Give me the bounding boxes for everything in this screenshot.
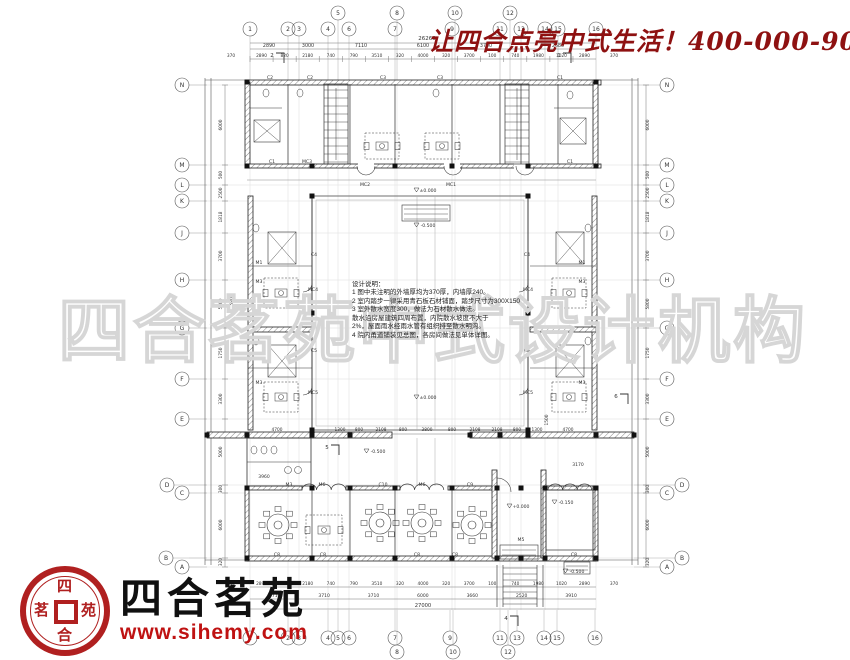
coffee-table [376, 142, 388, 150]
dim-text: 790 [350, 53, 358, 59]
column [468, 433, 473, 438]
tag-label: M5 [518, 537, 525, 543]
section-number: 6 [614, 394, 618, 400]
dim-text: 3700 [218, 250, 224, 261]
dim-text: 320 [442, 581, 450, 587]
axis-number-bottom: 10 [449, 649, 457, 656]
dim-text: 3000 [302, 43, 314, 49]
chair [458, 534, 464, 539]
dim-text: 740 [327, 53, 335, 59]
chair [377, 505, 383, 510]
wall [545, 486, 596, 490]
elevation-triangle [414, 395, 419, 399]
drawing-sheet: 1234567891011121314151612345678910111213… [0, 0, 850, 660]
tag-label: M3 [256, 380, 263, 386]
logo-text-block: 四合茗苑 www.sihemy.com [120, 577, 308, 645]
coffee-table [436, 142, 448, 150]
wall [245, 82, 250, 168]
column [245, 486, 250, 491]
dim-text: 27000 [415, 603, 432, 609]
wall [530, 327, 596, 332]
chair [408, 509, 414, 514]
notes-lines: 1 图中未注明的外墙厚均为370厚，内墙厚240。2 室内踏步一律采用青石板石材… [352, 289, 538, 340]
elevation-label: -0.500 [421, 223, 436, 229]
axis-letter-right: N [665, 82, 670, 89]
dim-text: 2890 [263, 43, 275, 49]
column [594, 486, 599, 491]
toilet-icon [251, 446, 257, 454]
column [245, 80, 250, 85]
chair [430, 509, 436, 514]
sofa-group [306, 515, 342, 545]
axis-number-bottom: 13 [513, 635, 521, 642]
column [495, 556, 500, 561]
axis-number-top: 4 [326, 26, 330, 33]
axis-letter-left: G [180, 325, 185, 332]
dining-table [468, 521, 476, 529]
wall [248, 196, 253, 430]
brand-logo: 四 合 茗 苑 四合茗苑 www.sihemy.com [20, 566, 308, 656]
wall [346, 486, 400, 490]
chair [286, 511, 292, 516]
axis-letter-right: C [665, 490, 669, 497]
section-flag [620, 394, 628, 404]
chair [291, 523, 297, 528]
dim-text: 3170 [572, 462, 584, 468]
tag-label: C4 [311, 252, 317, 258]
dim-text: 3510 [371, 581, 382, 587]
axis-number-top: 1 [248, 26, 252, 33]
column [594, 164, 599, 169]
chair [430, 532, 436, 537]
column [310, 433, 315, 438]
axis-letter-left: J [180, 230, 183, 237]
seal-char-bottom: 合 [57, 628, 72, 643]
tag-label: C2 [307, 75, 313, 81]
toilet-icon [263, 89, 269, 97]
axis-number-bottom: 12 [504, 649, 512, 656]
column [393, 556, 398, 561]
column [348, 433, 353, 438]
dim-text: 2180 [302, 53, 313, 59]
dim-text: 300 [218, 485, 224, 493]
table-decor [567, 291, 572, 296]
dim-text: 500 [218, 171, 224, 179]
toilet-icon [253, 337, 259, 345]
dining-table [461, 514, 483, 536]
column [450, 486, 455, 491]
axis-number-top: 7 [393, 26, 397, 33]
column [526, 164, 531, 169]
door-opening [358, 163, 374, 170]
dining-table [376, 519, 384, 527]
dim-text: 1818 [645, 211, 651, 222]
axis-letter-right: G [665, 325, 670, 332]
chair [435, 521, 441, 526]
dim-text: 3300 [218, 393, 224, 404]
note-line: 2%，屋面雨水经雨水管有组织排至散水明沟。 [352, 323, 538, 331]
tag-label: M6 [319, 482, 326, 488]
chair [366, 509, 372, 514]
chair [469, 539, 475, 544]
dining-table [369, 512, 391, 534]
column [245, 556, 250, 561]
tag-label: C3 [437, 75, 443, 81]
slogan-text: 让四合点亮中式生活！400-000-9075 [428, 27, 850, 56]
chair [388, 509, 394, 514]
dim-text: 320 [645, 558, 651, 566]
tag-label: C2 [267, 75, 273, 81]
chair [480, 534, 486, 539]
dim-text: 7110 [355, 43, 367, 49]
wall [207, 432, 392, 438]
tag-label: M1 [256, 260, 263, 266]
dim-text: 5800 [218, 298, 224, 309]
axis-number-top: 2 [286, 26, 290, 33]
seal-char-top: 四 [57, 579, 72, 594]
axis-letter-right: D [680, 482, 685, 489]
tag-label: C1 [557, 75, 563, 81]
gate-steps [402, 205, 450, 221]
dim-text: 820 [281, 53, 289, 59]
dim-text: 1750 [645, 347, 651, 358]
dim-text: 370 [610, 581, 618, 587]
tag-label: C1 [269, 159, 275, 165]
column [245, 164, 250, 169]
tag-label: M3 [579, 380, 586, 386]
column [450, 164, 455, 169]
column [594, 433, 599, 438]
column [526, 428, 531, 433]
wall [592, 196, 597, 430]
brand-website[interactable]: www.sihemy.com [120, 621, 308, 645]
dim-text: 1818 [218, 211, 224, 222]
dim-text: 5000 [645, 446, 651, 457]
dim-text: 100 [488, 581, 496, 587]
dim-text: 6000 [218, 519, 224, 530]
dim-text: 3700 [464, 581, 475, 587]
column [543, 556, 548, 561]
section-number: 4 [504, 616, 508, 622]
dim-text: 740 [327, 581, 335, 587]
dim-text: 6000 [218, 119, 224, 130]
tag-label: C5 [311, 348, 317, 354]
dim-text: 3960 [258, 474, 270, 480]
axis-letter-left: C [180, 490, 184, 497]
toilet-icon [585, 337, 591, 345]
axis-letter-left: K [180, 198, 185, 205]
dim-text: 6000 [645, 119, 651, 130]
toilet-icon [261, 446, 267, 454]
column [310, 556, 315, 561]
note-line: 4 院内甬道铺装见总图，各房间做法见单体详图。 [352, 332, 538, 340]
table-decor [279, 395, 284, 400]
table-decor [567, 395, 572, 400]
section-number: 2 [270, 53, 274, 59]
axis-letter-right: E [665, 416, 669, 423]
sofa-group [365, 133, 399, 159]
chair [366, 532, 372, 537]
sofa-group [425, 133, 459, 159]
toilet-icon [297, 89, 303, 97]
dim-text: 1020 [556, 581, 567, 587]
toilet-icon [271, 446, 277, 454]
dining-table [411, 512, 433, 534]
chair [485, 523, 491, 528]
column [310, 428, 315, 433]
tag-label: M1 [579, 260, 586, 266]
note-line: 散水沿房屋建筑四周布置，内院散水坡度不大于 [352, 315, 538, 323]
axis-letter-right: A [665, 564, 670, 571]
axis-number-bottom: 6 [347, 635, 351, 642]
axis-letter-right: L [665, 182, 669, 189]
brand-slogan: 让四合点亮中式生活！400-000-9075 [428, 22, 843, 58]
elevation-triangle [414, 223, 419, 227]
dim-text: 3710 [318, 593, 330, 599]
axis-letter-right: F [665, 376, 669, 383]
dim-text: 4000 [418, 581, 429, 587]
axis-letter-left: D [165, 482, 170, 489]
chair [393, 521, 399, 526]
dim-text: 6000 [645, 519, 651, 530]
table-decor [440, 144, 445, 149]
tag-label: M6 [419, 482, 426, 488]
column [245, 433, 250, 438]
chair [453, 523, 459, 528]
seal-char-left: 茗 [34, 603, 49, 618]
elevation-triangle [414, 188, 419, 192]
chair [458, 511, 464, 516]
note-line: 1 图中未注明的外墙厚均为370厚，内墙厚240。 [352, 289, 538, 297]
chair [388, 532, 394, 537]
tag-label: C8 [452, 552, 458, 558]
axis-number-bottom: 9 [448, 635, 452, 642]
elevation-triangle [364, 449, 369, 453]
seal-char-right: 苑 [81, 603, 96, 618]
brand-name: 四合茗苑 [120, 577, 308, 621]
toilet-icon [253, 224, 259, 232]
dim-text: 6000 [417, 593, 429, 599]
axis-number-bottom: 16 [591, 635, 599, 642]
column [594, 80, 599, 85]
tag-label: C9 [467, 482, 473, 488]
sofa-group [264, 382, 298, 412]
chair [377, 537, 383, 542]
dining-table [267, 514, 289, 536]
axis-number-top: 3 [297, 26, 301, 33]
chair [275, 507, 281, 512]
wall [247, 164, 601, 168]
chair [419, 505, 425, 510]
tag-label: M3 [579, 279, 586, 285]
axis-letter-right: J [665, 230, 668, 237]
elevation-label: -0.500 [570, 569, 585, 575]
elevation-label: -0.500 [371, 449, 386, 455]
column [310, 311, 315, 316]
elevation-triangle [507, 504, 512, 508]
tag-label: MC2 [360, 182, 370, 188]
chair [259, 523, 265, 528]
tag-label: C8 [320, 552, 326, 558]
chair [264, 511, 270, 516]
dim-text: 300 [645, 485, 651, 493]
dim-text: 5800 [645, 298, 651, 309]
axis-letter-left: H [180, 277, 185, 284]
elevation-triangle [552, 500, 557, 504]
dim-text: 3700 [645, 250, 651, 261]
dim-text: 320 [396, 581, 404, 587]
dim-text: 3660 [467, 593, 479, 599]
axis-letter-left: L [180, 182, 184, 189]
tag-label: MC1 [446, 182, 456, 188]
design-notes: 设计说明： 1 图中未注明的外墙厚均为370厚，内墙厚240。2 室内踏步一律采… [352, 281, 538, 340]
axis-number-top: 5 [336, 10, 340, 17]
tag-label: C8 [274, 552, 280, 558]
dim-text: 2890 [579, 581, 590, 587]
dim-text: 3300 [645, 393, 651, 404]
wall [247, 486, 302, 490]
column [348, 556, 353, 561]
column [393, 164, 398, 169]
sink-icon [295, 467, 302, 474]
dim-text: 5000 [218, 446, 224, 457]
dim-text: 500 [645, 171, 651, 179]
dim-text: 1500 [544, 414, 550, 425]
tag-label: MC3 [302, 159, 312, 165]
seal-stamp-icon: 四 合 茗 苑 [20, 566, 110, 656]
axis-number-top: 10 [451, 10, 459, 17]
dim-text: 3710 [368, 593, 380, 599]
wall [247, 80, 601, 85]
column [310, 194, 315, 199]
axis-letter-left: N [180, 82, 185, 89]
dim-text: 2890 [256, 53, 267, 59]
tag-label: C5 [524, 348, 530, 354]
table-decor [380, 144, 385, 149]
section-number: 5 [325, 445, 329, 451]
sofa-group [552, 382, 586, 412]
axis-number-top: 8 [395, 10, 399, 17]
chair [419, 537, 425, 542]
chair [469, 507, 475, 512]
dim-text: 3510 [371, 53, 382, 59]
wall [492, 470, 497, 558]
elevation-label: ±0.000 [419, 188, 436, 194]
axis-number-bottom: 15 [553, 635, 561, 642]
chair [264, 534, 270, 539]
column [519, 486, 524, 491]
axis-letter-left: B [164, 555, 168, 562]
wall [245, 486, 249, 561]
axis-letter-right: M [664, 162, 669, 169]
column [594, 556, 599, 561]
wall [470, 432, 634, 438]
tag-label: MC4 [308, 287, 318, 293]
tag-label: C8 [571, 552, 577, 558]
table-decor [322, 528, 327, 533]
note-line: 3 室外散水宽度300，做法为石材散水做法。 [352, 306, 538, 314]
chair [286, 534, 292, 539]
axis-letter-left: F [180, 376, 184, 383]
column [519, 556, 524, 561]
tag-label: C4 [524, 252, 530, 258]
axis-letter-right: H [665, 277, 670, 284]
chair [275, 539, 281, 544]
dim-text: 370 [227, 53, 235, 59]
tag-label: MC5 [523, 390, 533, 396]
column [526, 194, 531, 199]
tag-label: C3 [380, 75, 386, 81]
dim-text: 3910 [565, 593, 577, 599]
axis-number-bottom: 5 [336, 635, 340, 642]
dining-table [274, 521, 282, 529]
chair [403, 521, 409, 526]
dim-text: 1750 [218, 347, 224, 358]
chair [480, 511, 486, 516]
axis-number-top: 6 [347, 26, 351, 33]
column [543, 486, 548, 491]
kitchen-room [546, 490, 595, 550]
tag-label: M3 [256, 279, 263, 285]
chair [408, 532, 414, 537]
axis-number-bottom: 7 [393, 635, 397, 642]
tag-label: C10 [378, 482, 387, 488]
sofa-group [264, 278, 298, 308]
toilet-icon [433, 89, 439, 97]
dining-table [418, 519, 426, 527]
tag-label: MC5 [308, 390, 318, 396]
elevation-label: ±0.000 [419, 395, 436, 401]
axis-letter-left: E [180, 416, 184, 423]
column [393, 486, 398, 491]
chair [361, 521, 367, 526]
axis-number-top: 12 [506, 10, 514, 17]
elevation-label: +0.000 [512, 504, 529, 510]
column [495, 486, 500, 491]
dim-text: 790 [350, 581, 358, 587]
wall [248, 327, 312, 332]
toilet-icon [567, 91, 573, 99]
tag-label: M3 [286, 482, 293, 488]
tag-label: C8 [414, 552, 420, 558]
tag-label: C1 [567, 159, 573, 165]
axis-number-bottom: 14 [540, 635, 548, 642]
column [205, 433, 210, 438]
wall [541, 470, 546, 558]
axis-letter-left: M [179, 162, 184, 169]
column [632, 433, 637, 438]
column [526, 433, 531, 438]
dim-text: 5800 [229, 294, 235, 305]
dim-text: 320 [396, 53, 404, 59]
axis-letter-right: K [665, 198, 670, 205]
elevation-label: -0.150 [559, 500, 574, 506]
axis-number-bottom: 11 [496, 635, 504, 642]
axis-letter-right: B [680, 555, 684, 562]
toilet-icon [585, 224, 591, 232]
column [348, 486, 353, 491]
axis-number-bottom: 8 [395, 649, 399, 656]
seal-center-square [54, 600, 78, 624]
table-decor [279, 291, 284, 296]
dim-text: 2500 [645, 187, 651, 198]
column [498, 433, 503, 438]
dim-text: 320 [218, 558, 224, 566]
column [310, 486, 315, 491]
dim-text: 2500 [218, 187, 224, 198]
wall [593, 82, 598, 168]
axis-number-bottom: 4 [326, 635, 330, 642]
